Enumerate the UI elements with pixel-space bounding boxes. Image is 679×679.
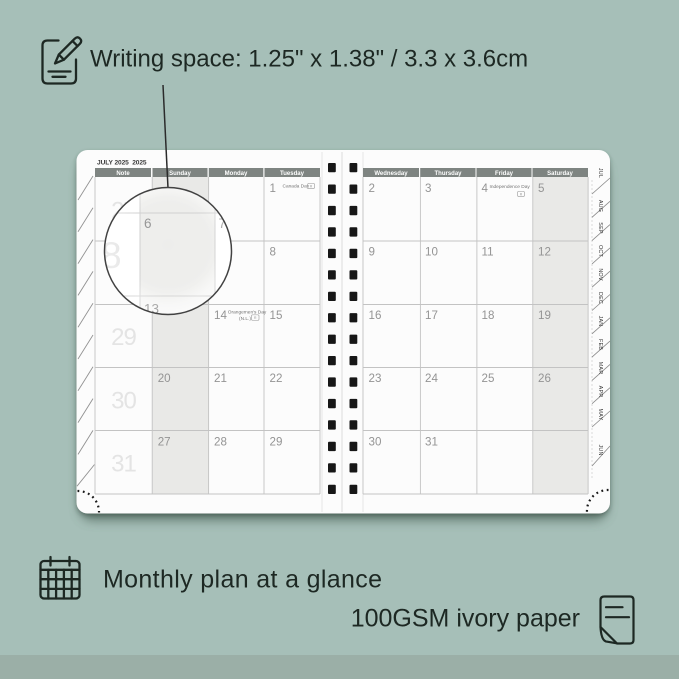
svg-text:JAN: JAN bbox=[597, 316, 603, 327]
svg-text:DEC: DEC bbox=[597, 292, 603, 304]
svg-text:Canada Day: Canada Day bbox=[283, 184, 310, 190]
svg-text:MAY: MAY bbox=[597, 409, 603, 421]
svg-text:12: 12 bbox=[538, 246, 551, 259]
svg-text:Saturday: Saturday bbox=[547, 171, 573, 177]
svg-text:Wednesday: Wednesday bbox=[374, 171, 408, 177]
svg-text:8: 8 bbox=[270, 246, 276, 259]
svg-text:JUN: JUN bbox=[597, 444, 603, 455]
svg-text:FEB: FEB bbox=[597, 339, 603, 350]
svg-text:17: 17 bbox=[425, 309, 438, 322]
svg-text:2: 2 bbox=[369, 182, 375, 195]
svg-text:AUG: AUG bbox=[597, 200, 603, 212]
svg-text:4: 4 bbox=[482, 182, 489, 195]
svg-text:31: 31 bbox=[111, 451, 136, 478]
svg-text:Monday: Monday bbox=[225, 171, 248, 177]
svg-text:APR: APR bbox=[597, 386, 603, 398]
svg-text:9: 9 bbox=[369, 246, 375, 259]
svg-text:JUL: JUL bbox=[597, 168, 603, 178]
svg-text:29: 29 bbox=[111, 324, 136, 351]
svg-text:SEP: SEP bbox=[597, 222, 603, 234]
svg-text:Writing space: 1.25" x 1.38" /: Writing space: 1.25" x 1.38" / 3.3 x 3.6… bbox=[90, 46, 528, 73]
svg-text:18: 18 bbox=[482, 309, 495, 322]
svg-text:Sunday: Sunday bbox=[169, 171, 191, 177]
svg-text:15: 15 bbox=[270, 309, 283, 322]
svg-text:Tuesday: Tuesday bbox=[280, 171, 305, 177]
svg-text:OCT: OCT bbox=[597, 245, 603, 257]
svg-text:27: 27 bbox=[158, 436, 171, 449]
svg-text:24: 24 bbox=[425, 372, 438, 385]
svg-text:11: 11 bbox=[482, 246, 494, 259]
svg-text:25: 25 bbox=[482, 372, 495, 385]
svg-text:28: 28 bbox=[214, 436, 227, 449]
svg-text:100GSM ivory paper: 100GSM ivory paper bbox=[351, 605, 580, 633]
svg-text:16: 16 bbox=[369, 309, 382, 322]
svg-text:Orangemen's Day: Orangemen's Day bbox=[228, 310, 267, 316]
svg-text:1: 1 bbox=[270, 182, 276, 195]
svg-text:23: 23 bbox=[369, 372, 382, 385]
svg-text:30: 30 bbox=[111, 388, 136, 415]
svg-text:Independence Day: Independence Day bbox=[490, 184, 531, 190]
svg-text:(N.L.): (N.L.) bbox=[239, 316, 251, 322]
svg-text:26: 26 bbox=[538, 372, 551, 385]
svg-text:NOV: NOV bbox=[597, 268, 603, 280]
svg-text:29: 29 bbox=[270, 436, 283, 449]
svg-text:14: 14 bbox=[214, 309, 227, 322]
svg-text:31: 31 bbox=[425, 436, 438, 449]
svg-text:MAR: MAR bbox=[597, 362, 603, 375]
svg-text:19: 19 bbox=[538, 309, 551, 322]
svg-text:30: 30 bbox=[369, 436, 382, 449]
svg-text:20: 20 bbox=[158, 372, 171, 385]
svg-text:5: 5 bbox=[538, 182, 544, 195]
svg-text:Note: Note bbox=[116, 171, 130, 177]
svg-text:Monthly plan at a glance: Monthly plan at a glance bbox=[103, 566, 382, 594]
svg-text:10: 10 bbox=[425, 246, 438, 259]
svg-text:21: 21 bbox=[214, 372, 227, 385]
svg-text:JULY 2025 2025: JULY 2025 2025 bbox=[97, 160, 147, 167]
svg-text:22: 22 bbox=[270, 372, 283, 385]
svg-text:3: 3 bbox=[425, 182, 431, 195]
svg-text:Friday: Friday bbox=[495, 171, 514, 177]
svg-text:Thursday: Thursday bbox=[434, 171, 462, 177]
